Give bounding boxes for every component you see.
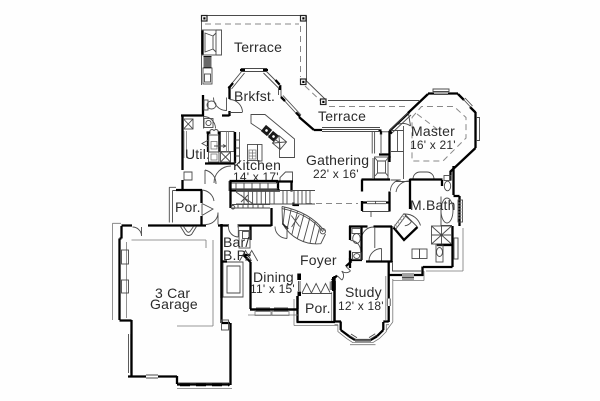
svg-text:Terrace: Terrace	[318, 108, 366, 124]
svg-text:Brkfst.: Brkfst.	[234, 88, 275, 104]
svg-text:Foyer: Foyer	[300, 252, 337, 268]
svg-text:Gathering: Gathering	[306, 152, 369, 168]
svg-text:16' x 21': 16' x 21'	[410, 138, 456, 152]
svg-text:12' x 18': 12' x 18'	[338, 299, 384, 313]
svg-text:Study: Study	[345, 284, 382, 300]
svg-text:Por.: Por.	[305, 300, 331, 316]
svg-text:Terrace: Terrace	[234, 39, 282, 55]
svg-text:11' x 15': 11' x 15'	[250, 282, 295, 296]
svg-text:B.P.: B.P.	[223, 247, 248, 263]
svg-text:22' x 16': 22' x 16'	[313, 167, 359, 181]
svg-text:Garage: Garage	[150, 296, 198, 312]
svg-text:Master: Master	[411, 123, 455, 139]
svg-text:Util.: Util.	[185, 146, 210, 162]
svg-text:Por.: Por.	[175, 199, 201, 215]
svg-text:M.Bath: M.Bath	[410, 197, 456, 213]
